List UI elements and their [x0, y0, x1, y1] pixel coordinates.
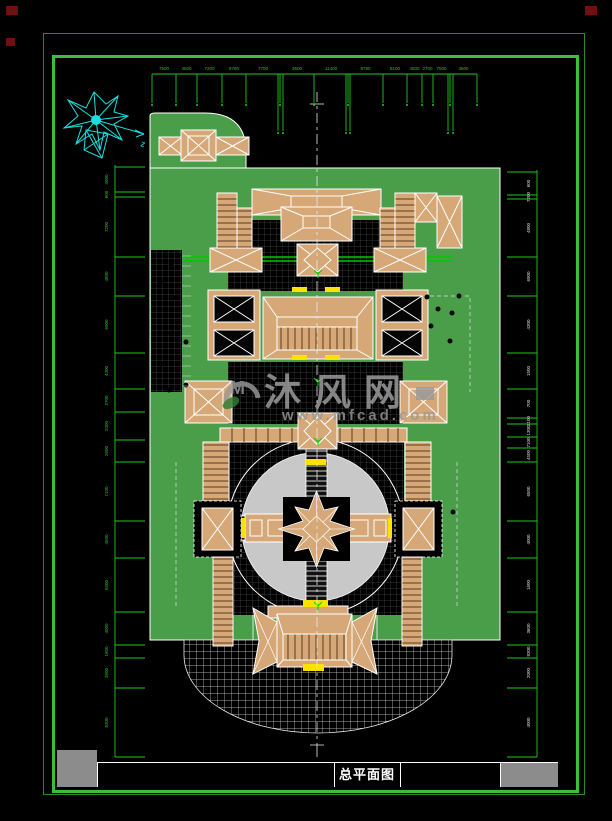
- title-block-left-panel: [57, 750, 97, 787]
- left-dimension-chain: 3000600720048006900430027003400260071004…: [104, 165, 145, 757]
- svg-text:4000: 4000: [104, 623, 109, 634]
- svg-text:7100: 7100: [526, 437, 531, 448]
- central-star-pavilion: [279, 491, 355, 567]
- svg-text:6500: 6500: [526, 486, 531, 497]
- svg-text:7100: 7100: [104, 486, 109, 497]
- site-plan-drawing: 7500450072009780770036001140097808100450…: [0, 0, 612, 821]
- svg-text:4500: 4500: [526, 449, 531, 460]
- svg-text:1600: 1600: [104, 646, 109, 657]
- svg-text:4300: 4300: [526, 319, 531, 330]
- title-block-divider: [500, 762, 501, 787]
- svg-text:600: 600: [104, 190, 109, 198]
- svg-text:4500: 4500: [409, 66, 420, 71]
- svg-text:3000: 3000: [104, 174, 109, 185]
- svg-text:2100: 2100: [526, 415, 531, 426]
- svg-text:7200: 7200: [104, 221, 109, 232]
- svg-text:4800: 4800: [526, 222, 531, 233]
- svg-text:4500: 4500: [104, 534, 109, 545]
- svg-text:11400: 11400: [325, 66, 338, 71]
- svg-text:1300: 1300: [526, 425, 531, 436]
- svg-text:8100: 8100: [390, 66, 401, 71]
- svg-text:7500: 7500: [436, 66, 447, 71]
- right-dimension-chain: 6007200480069004300150070021001300710045…: [507, 170, 537, 757]
- svg-text:9780: 9780: [360, 66, 371, 71]
- title-block-divider: [97, 762, 98, 787]
- svg-text:2000: 2000: [526, 667, 531, 678]
- svg-text:2700: 2700: [104, 395, 109, 406]
- svg-text:3600: 3600: [458, 66, 469, 71]
- svg-text:7500: 7500: [159, 66, 170, 71]
- drawing-title: 总平面图: [334, 763, 400, 787]
- svg-text:3600: 3600: [292, 66, 303, 71]
- title-block-divider: [400, 762, 401, 787]
- svg-text:2700: 2700: [422, 66, 433, 71]
- svg-text:6900: 6900: [526, 271, 531, 282]
- svg-text:700: 700: [526, 399, 531, 407]
- svg-text:3400: 3400: [104, 420, 109, 431]
- svg-text:9780: 9780: [229, 66, 240, 71]
- svg-text:4000: 4000: [526, 717, 531, 728]
- svg-text:4300: 4300: [104, 365, 109, 376]
- svg-text:4800: 4800: [104, 271, 109, 282]
- svg-text:7200: 7200: [204, 66, 215, 71]
- svg-text:8300: 8300: [526, 646, 531, 657]
- svg-text:4000: 4000: [526, 534, 531, 545]
- cad-drawing-canvas: z: [0, 0, 612, 821]
- title-block-right-panel: [500, 763, 558, 787]
- svg-text:3600: 3600: [526, 623, 531, 634]
- svg-text:7200: 7200: [526, 191, 531, 202]
- svg-text:2600: 2600: [104, 445, 109, 456]
- svg-text:3600: 3600: [104, 667, 109, 678]
- svg-text:7700: 7700: [258, 66, 269, 71]
- svg-text:6900: 6900: [104, 319, 109, 330]
- svg-text:6500: 6500: [104, 579, 109, 590]
- svg-text:8300: 8300: [104, 717, 109, 728]
- title-block-divider: [97, 762, 558, 763]
- svg-text:4500: 4500: [181, 66, 192, 71]
- svg-text:1500: 1500: [526, 365, 531, 376]
- svg-text:600: 600: [526, 179, 531, 187]
- second-hall-complex: [208, 290, 428, 360]
- svg-text:1600: 1600: [526, 579, 531, 590]
